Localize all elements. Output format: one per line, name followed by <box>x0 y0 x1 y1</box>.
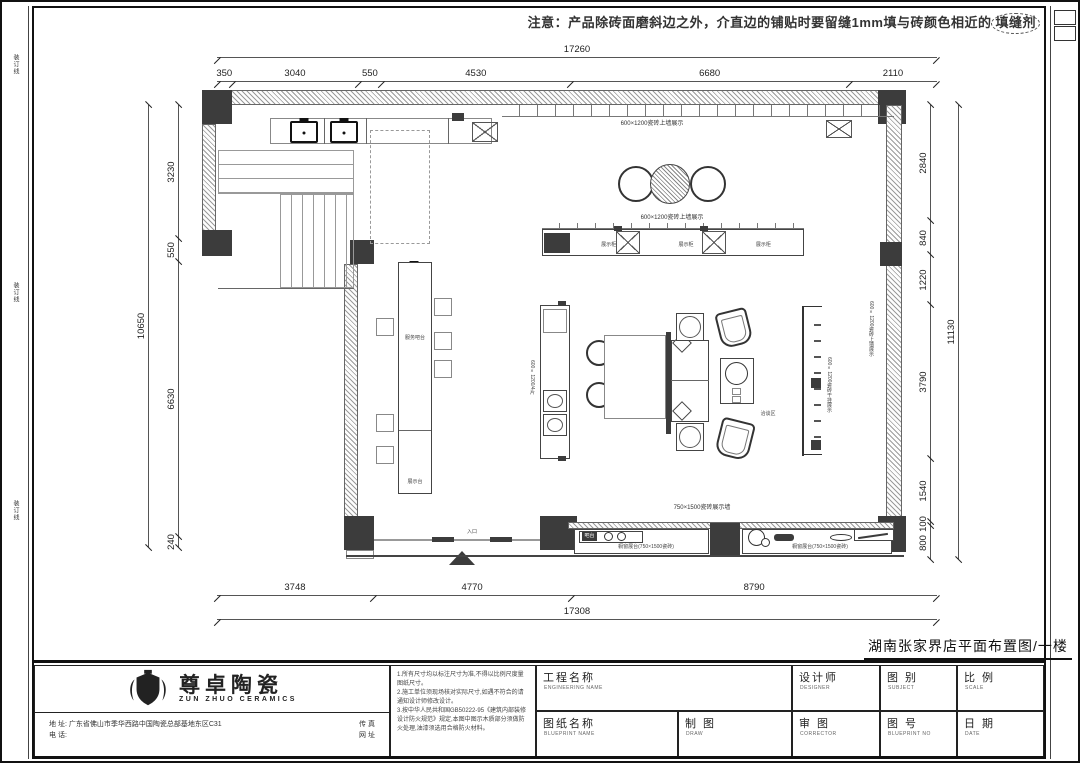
tiling-note-circled: 填缝剂 <box>991 13 1040 34</box>
binding-margin-line <box>28 6 29 759</box>
island-cells: 展示柜展示柜展示柜 <box>570 233 802 251</box>
field-scale-en: SCALE <box>958 685 1043 691</box>
cabinet-fixture <box>543 390 567 412</box>
tiling-note-text: 注意：产品除砖面磨斜边之外，介直边的铺贴时要留缝1mm填与砖颜色相近的 <box>528 15 992 30</box>
field-date-cn: 日 期 <box>958 712 1043 731</box>
island-divider-x <box>616 231 640 254</box>
plant-circle <box>679 316 701 338</box>
island-divider-x <box>702 231 726 254</box>
plant-circle <box>679 426 701 448</box>
stool-square <box>376 414 394 432</box>
field-category: 图 别 SUBJECT <box>880 665 957 711</box>
binding-mark: 装订线 <box>11 54 20 75</box>
field-designer: 设计师 DESIGNER <box>792 665 880 711</box>
stool-square <box>434 298 452 316</box>
dimension-segment: 3040 <box>232 62 359 81</box>
address-label: 地 址: <box>49 721 67 728</box>
stool-square <box>376 318 394 336</box>
cabinet-top-unit <box>543 309 567 333</box>
island-cell-label: 展示柜 <box>725 233 802 251</box>
counter-divider <box>324 118 325 144</box>
stair-landing <box>218 150 354 194</box>
dimension-segment: 11130 <box>959 105 978 559</box>
binding-mark: 装订线 <box>11 282 20 303</box>
bottom-facade-line <box>346 555 904 557</box>
stair-treads <box>280 194 354 288</box>
cabinet-fixture <box>543 414 567 436</box>
dim-right-total: 11130 <box>958 105 978 559</box>
entrance-label: 入口 <box>442 530 502 535</box>
wall-display-ticks <box>502 105 894 117</box>
note-line: 2.施工单位须现场核对实际尺寸,如遇不符合的请通知设计师修改设计。 <box>397 689 529 707</box>
field-checker-en: CORRECTOR <box>793 731 879 737</box>
service-counter-sub-label: 展示台 <box>400 480 430 485</box>
column-bottom-pier <box>710 523 740 555</box>
field-number-cn: 图 号 <box>881 712 956 731</box>
stool-square <box>434 360 452 378</box>
address-cell: 地 址: 广东省佛山市季华西路中国陶瓷总部基地东区C31 电 话: 传 真 网 … <box>34 712 390 757</box>
display-panel-block <box>811 440 821 450</box>
table-item <box>732 388 741 395</box>
logo-crest-icon <box>127 669 169 709</box>
field-drawing-name: 图纸名称 BLUEPRINT NAME <box>536 711 678 757</box>
dim-top-total: 17260 <box>217 38 937 58</box>
dimension-segment: 3748 <box>217 576 373 595</box>
field-scale-cn: 比 例 <box>958 666 1043 685</box>
platform-right-label: 橱窗展台(750×1500瓷砖) <box>768 545 872 550</box>
note-line: 1.所有尺寸均以标注尺寸为准,不得以比例尺度量图纸尺寸。 <box>397 671 529 689</box>
display-object <box>774 534 794 541</box>
stool-square <box>376 446 394 464</box>
wall-block <box>452 113 464 121</box>
right-wall-label: 600×1200瓷砖上墙展示 <box>868 284 873 374</box>
dim-bottom-segments: 374847708790 <box>217 576 937 596</box>
field-scale: 比 例 SCALE <box>957 665 1044 711</box>
dimension-segment: 240 <box>179 537 198 547</box>
dimension-segment: 6630 <box>179 262 198 537</box>
reception-label: 吧台 <box>582 534 597 539</box>
field-category-cn: 图 别 <box>881 666 956 685</box>
dimension-segment: 1220 <box>931 255 950 305</box>
door-leaf <box>490 537 512 542</box>
fax-label: 传 真 <box>359 719 375 730</box>
column-left-mid <box>202 230 232 256</box>
logo-text-cn: 尊卓陶瓷 <box>179 675 297 696</box>
field-project-en: ENGINEERING NAME <box>537 685 791 691</box>
table-plant <box>725 362 748 385</box>
dimension-segment: 2110 <box>849 62 937 81</box>
display-panel-label: 600×1200瓷砖干挂展示 <box>826 340 831 430</box>
service-counter-label: 服务吧台 <box>400 336 430 341</box>
side-table-long <box>604 335 666 419</box>
counter-divider <box>448 118 449 144</box>
sink <box>330 121 358 143</box>
dimension-segment: 17260 <box>217 38 937 57</box>
title-block-bottom-rule <box>32 756 1046 759</box>
plant-small <box>761 538 770 547</box>
column-top-left <box>202 90 232 124</box>
door-leaf <box>432 537 454 542</box>
display-oval <box>830 534 852 541</box>
dimension-segment: 550 <box>179 239 198 262</box>
field-designer-cn: 设计师 <box>793 666 879 685</box>
side-table-plant <box>676 313 704 341</box>
notes-cell: 1.所有尺寸均以标注尺寸为准,不得以比例尺度量图纸尺寸。2.施工单位须现场核对实… <box>390 665 536 757</box>
wall-top <box>230 90 902 105</box>
dim-bottom-total: 17308 <box>217 600 937 620</box>
island-mark <box>614 226 622 231</box>
field-drawing-en: BLUEPRINT NAME <box>537 731 677 737</box>
cabinet-mark <box>558 301 566 306</box>
sofa-seat-divider <box>671 380 709 381</box>
wall-left-lower <box>344 264 358 518</box>
stool <box>617 532 626 541</box>
stool-square <box>434 332 452 350</box>
field-draftsman: 制 图 DRAW <box>678 711 792 757</box>
drawing-sheet: 装订线 装订线 装订线 注意：产品除砖面磨斜边之外，介直边的铺贴时要留缝1mm填… <box>0 0 1080 763</box>
sofa-area-label: 洽谈区 <box>754 412 782 417</box>
stair-edge-line <box>218 288 354 289</box>
ceiling-dashed-zone <box>370 130 430 244</box>
dimension-segment: 8790 <box>571 576 937 595</box>
service-counter <box>398 262 432 494</box>
logo-text-en: ZUN ZHUO CERAMICS <box>179 696 297 703</box>
round-chair <box>690 166 726 202</box>
field-project-cn: 工程名称 <box>537 666 791 685</box>
sink <box>290 121 318 143</box>
column-bottom-left <box>344 516 374 550</box>
display-panel-stub <box>802 306 822 307</box>
round-chair <box>618 166 654 202</box>
field-project: 工程名称 ENGINEERING NAME <box>536 665 792 711</box>
field-number-en: BLUEPRINT NO <box>881 731 956 737</box>
cabinet-label: 600×1200/4片 <box>529 332 534 422</box>
dimension-segment: 4770 <box>373 576 571 595</box>
field-checker-cn: 审 图 <box>793 712 879 731</box>
table-item <box>732 396 741 403</box>
field-draftsman-en: DRAW <box>679 731 791 737</box>
phone-label: 电 话: <box>49 732 67 739</box>
counter-divider <box>399 430 431 431</box>
side-table-plant <box>676 423 704 451</box>
drawing-title: 湖南张家界店平面布置图/一楼 <box>864 636 1072 660</box>
display-wall-bottom-label: 750×1500瓷砖展示墙 <box>622 505 782 512</box>
island-end-block <box>544 233 570 253</box>
wall-right <box>886 105 902 517</box>
revision-box <box>1054 26 1076 41</box>
cabinet-mark <box>558 456 566 461</box>
entrance-arrow <box>449 551 475 565</box>
shaft-box <box>472 122 498 142</box>
tiling-note: 注意：产品除砖面磨斜边之外，介直边的铺贴时要留缝1mm填与砖颜色相近的填缝剂 <box>422 12 1040 31</box>
dimension-segment: 6680 <box>570 62 849 81</box>
dimension-segment: 2840 <box>931 105 950 221</box>
binding-mark: 装订线 <box>11 500 20 521</box>
field-designer-en: DESIGNER <box>793 685 879 691</box>
revision-box <box>1054 10 1076 25</box>
title-block-top-rule <box>32 660 1046 663</box>
counter-divider <box>366 118 367 144</box>
storefront-glass <box>374 539 540 541</box>
note-line: 3.按中华人民共和国GB50222-95《建筑内部装修设计防火规范》规定,本图中… <box>397 707 529 734</box>
platform-left-label: 橱窗展台(750×1500瓷砖) <box>598 545 694 550</box>
display-panel-block <box>811 378 821 388</box>
stool <box>604 532 613 541</box>
shaft-box <box>826 120 852 138</box>
fixture-circle <box>547 394 563 408</box>
display-panel-stub <box>802 454 822 455</box>
dimension-segment: 4530 <box>381 62 570 81</box>
display-panel-line <box>802 306 804 456</box>
field-drawing-cn: 图纸名称 <box>537 712 677 731</box>
dim-top-segments: 3503040550453066802110 <box>217 62 937 82</box>
dimension-segment: 550 <box>358 62 381 81</box>
dimension-segment: 1540 <box>931 459 950 522</box>
column-right-mid <box>880 242 902 266</box>
field-date: 日 期 DATE <box>957 711 1044 757</box>
fixture-circle <box>547 418 563 432</box>
field-number: 图 号 BLUEPRINT NO <box>880 711 957 757</box>
top-wall-display-label: 600×1200瓷砖上墙展示 <box>572 121 732 128</box>
dimension-segment: 3230 <box>179 105 198 239</box>
dimension-segment: 800 <box>931 526 950 559</box>
island-label: 600×1200瓷砖上墙展示 <box>602 215 742 222</box>
dimension-segment: 350 <box>217 62 232 81</box>
address-value: 广东省佛山市季华西路中国陶瓷总部基地东区C31 <box>69 721 222 728</box>
field-draftsman-cn: 制 图 <box>679 712 791 731</box>
dimension-segment: 840 <box>931 221 950 255</box>
field-date-en: DATE <box>958 731 1043 737</box>
web-label: 网 址 <box>359 730 375 741</box>
logo-cell: 尊卓陶瓷 ZUN ZHUO CERAMICS <box>34 665 390 713</box>
round-display-table <box>650 164 690 204</box>
dimension-segment: 17308 <box>217 600 937 619</box>
dim-left-total: 10650 <box>148 105 168 547</box>
dim-left-segments: 32305506630240 <box>178 105 198 547</box>
field-checker: 审 图 CORRECTOR <box>792 711 880 757</box>
wall-left-upper <box>202 124 216 234</box>
field-category-en: SUBJECT <box>881 685 956 691</box>
island-mark <box>700 226 708 231</box>
